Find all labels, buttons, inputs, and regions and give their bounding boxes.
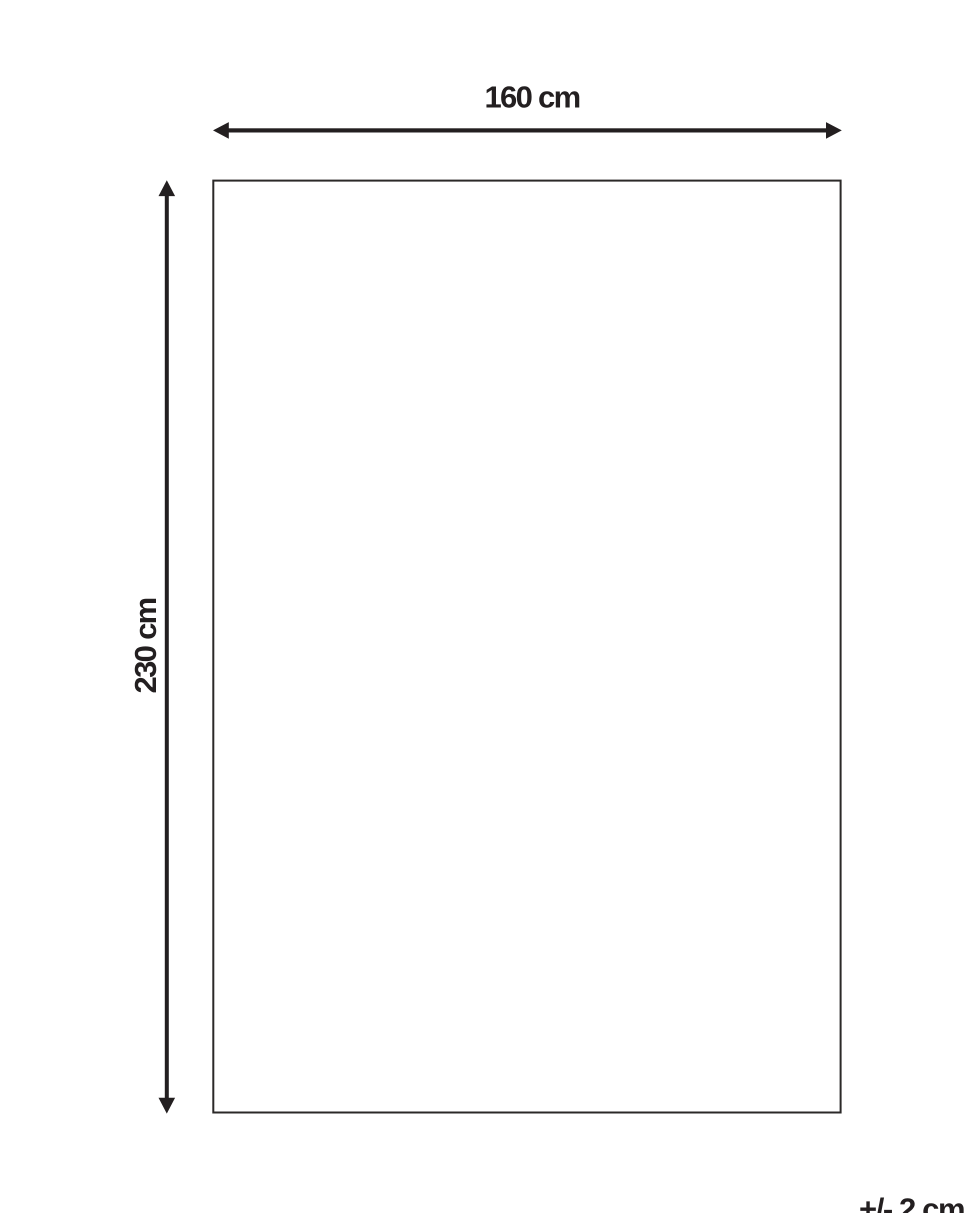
svg-text:160 cm: 160 cm xyxy=(485,80,580,115)
svg-text:230 cm: 230 cm xyxy=(128,598,163,693)
svg-text:+/- 2 cm: +/- 2 cm xyxy=(859,1192,964,1213)
